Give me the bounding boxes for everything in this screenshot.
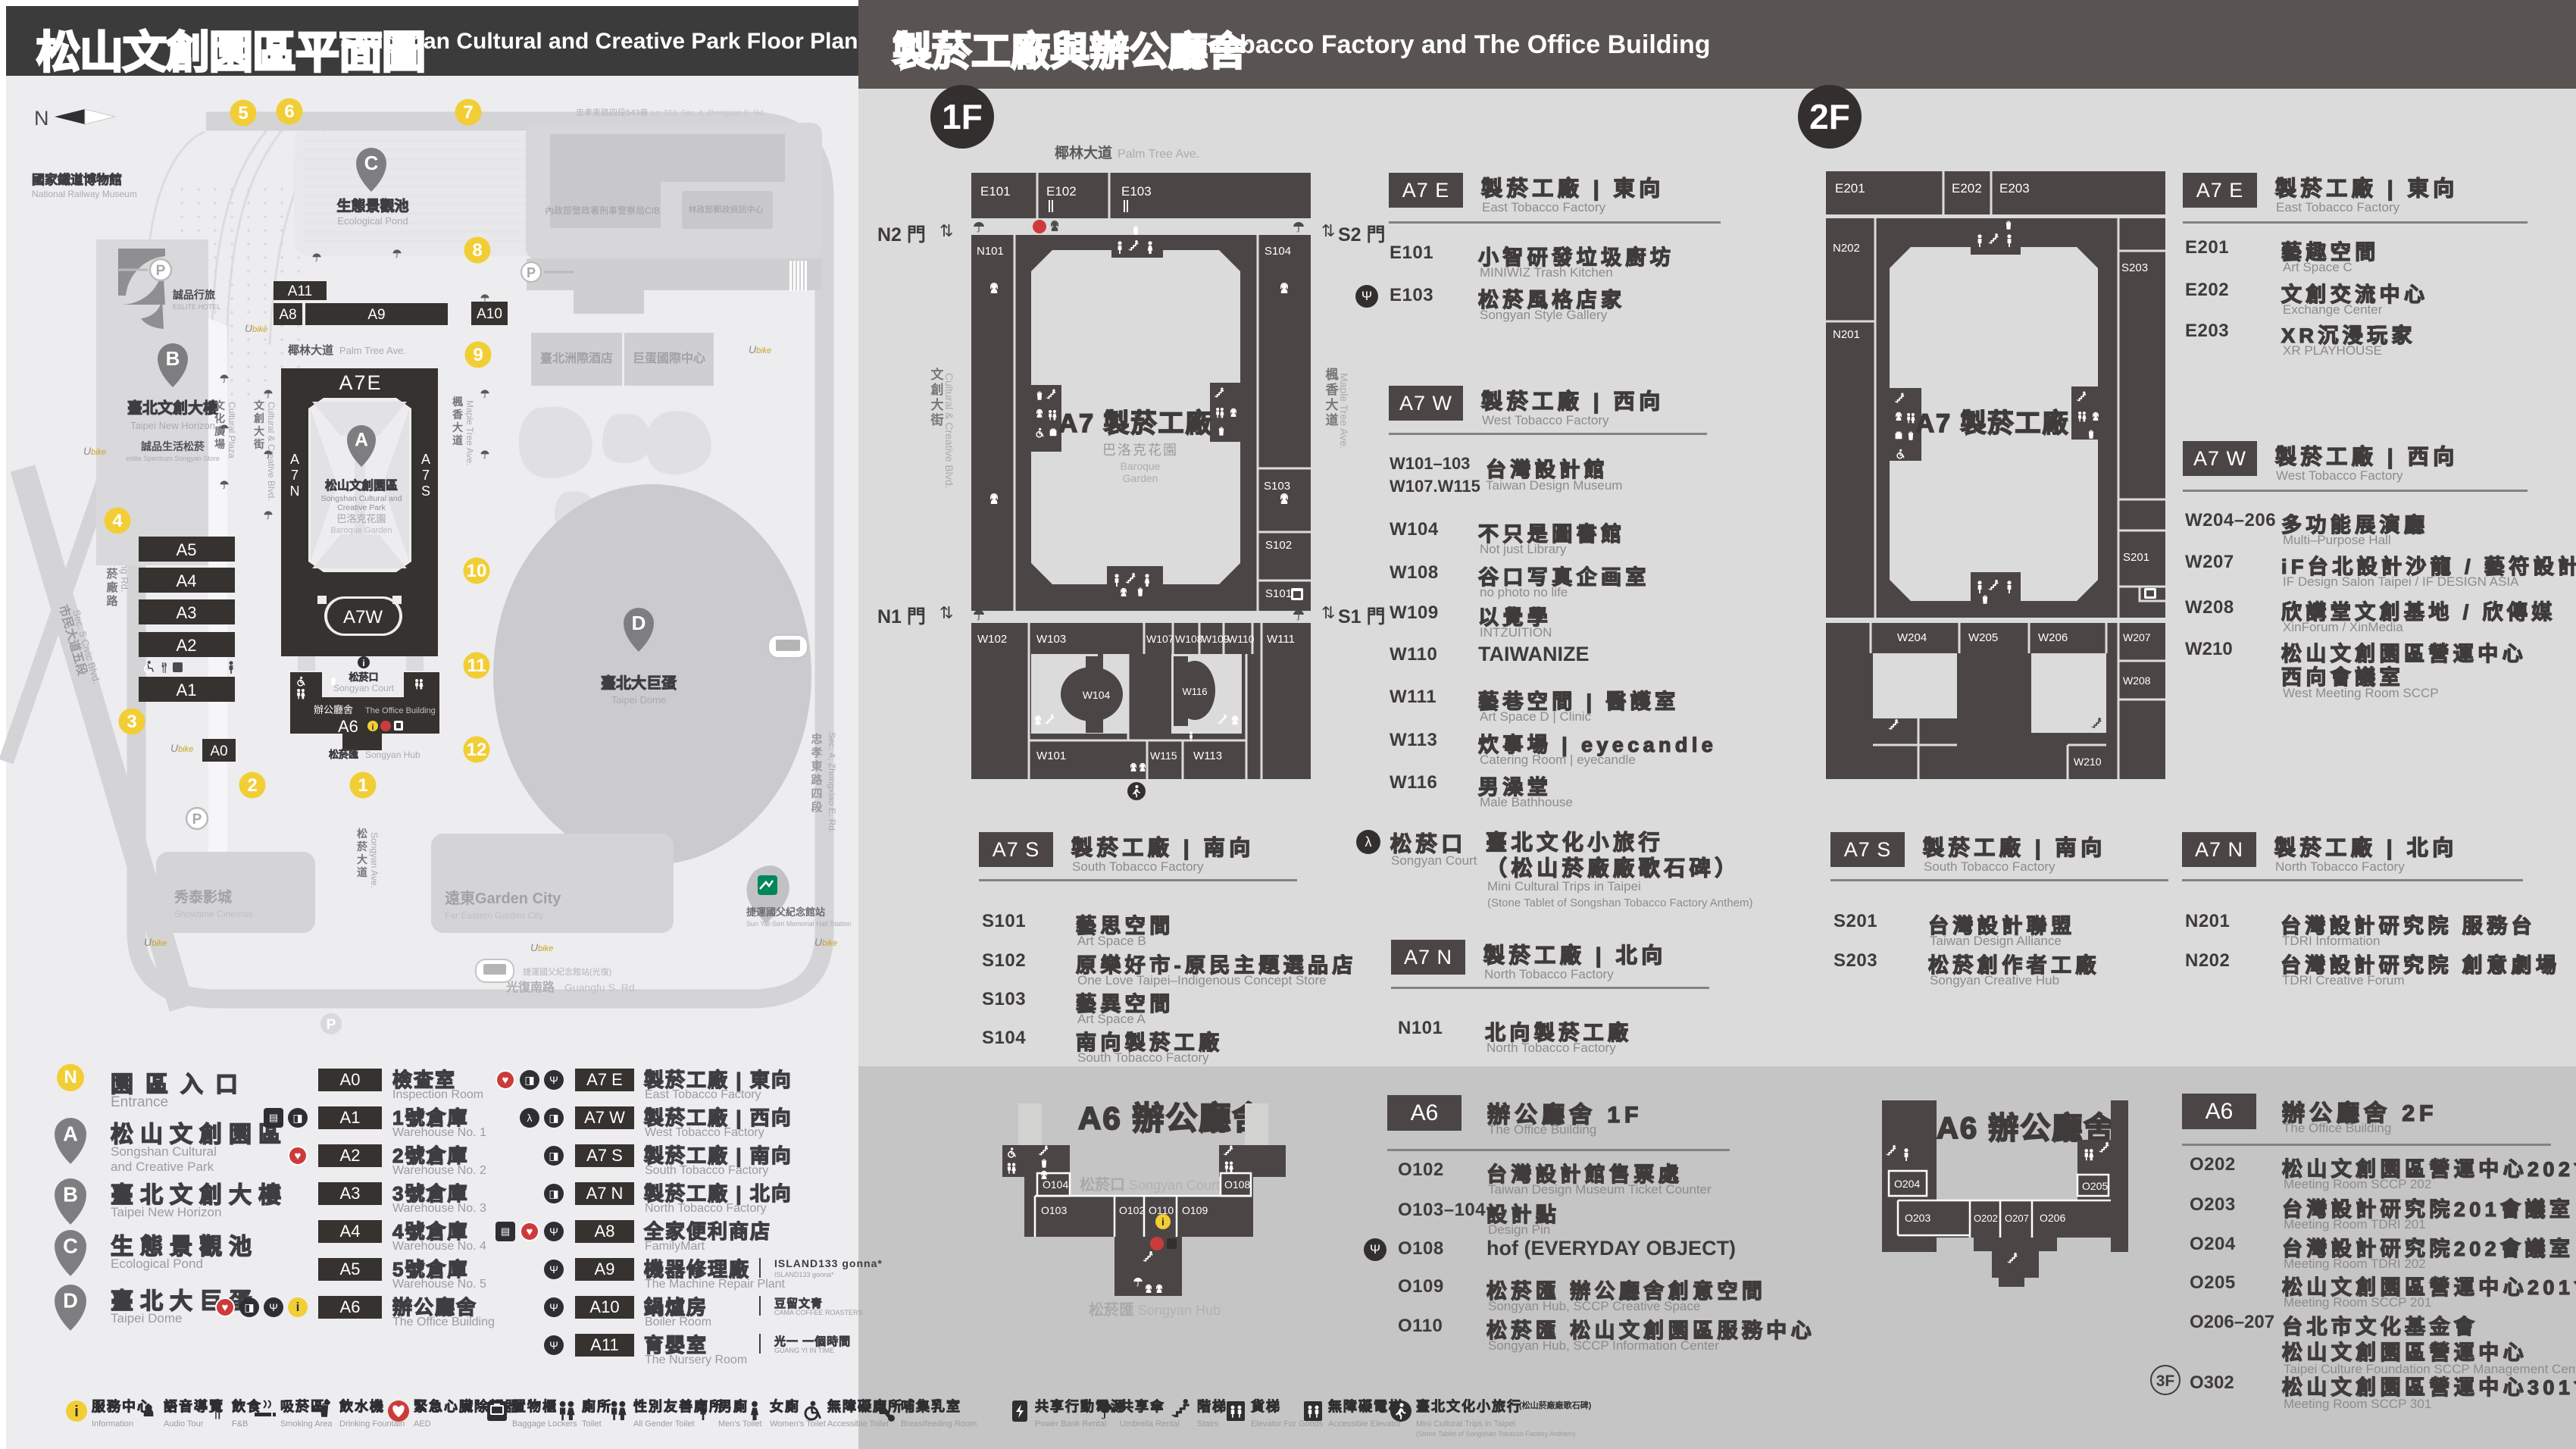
svg-text:O203: O203 <box>1905 1212 1930 1224</box>
svg-text:O102: O102 <box>1119 1204 1145 1216</box>
svg-text:O205: O205 <box>2082 1180 2108 1192</box>
svg-text:松菸口: 松菸口 <box>1080 1175 1125 1194</box>
svg-text:O204: O204 <box>1894 1178 1920 1190</box>
svg-text:Songyan Court: Songyan Court <box>1129 1178 1220 1193</box>
svg-text:O202: O202 <box>1974 1213 1998 1224</box>
svg-text:i: i <box>1161 1216 1165 1228</box>
svg-text:O108: O108 <box>1224 1178 1250 1191</box>
svg-text:A6 辦公廳舍: A6 辦公廳舍 <box>1078 1100 1265 1136</box>
svg-text:O206: O206 <box>2040 1212 2065 1224</box>
svg-text:Songyan Hub: Songyan Hub <box>1138 1303 1221 1318</box>
svg-text:O207: O207 <box>2005 1213 2029 1224</box>
svg-text:O109: O109 <box>1182 1204 1208 1216</box>
svg-text:O104: O104 <box>1043 1178 1068 1191</box>
svg-text:松菸匯: 松菸匯 <box>1089 1300 1134 1319</box>
svg-text:O103: O103 <box>1041 1204 1067 1216</box>
